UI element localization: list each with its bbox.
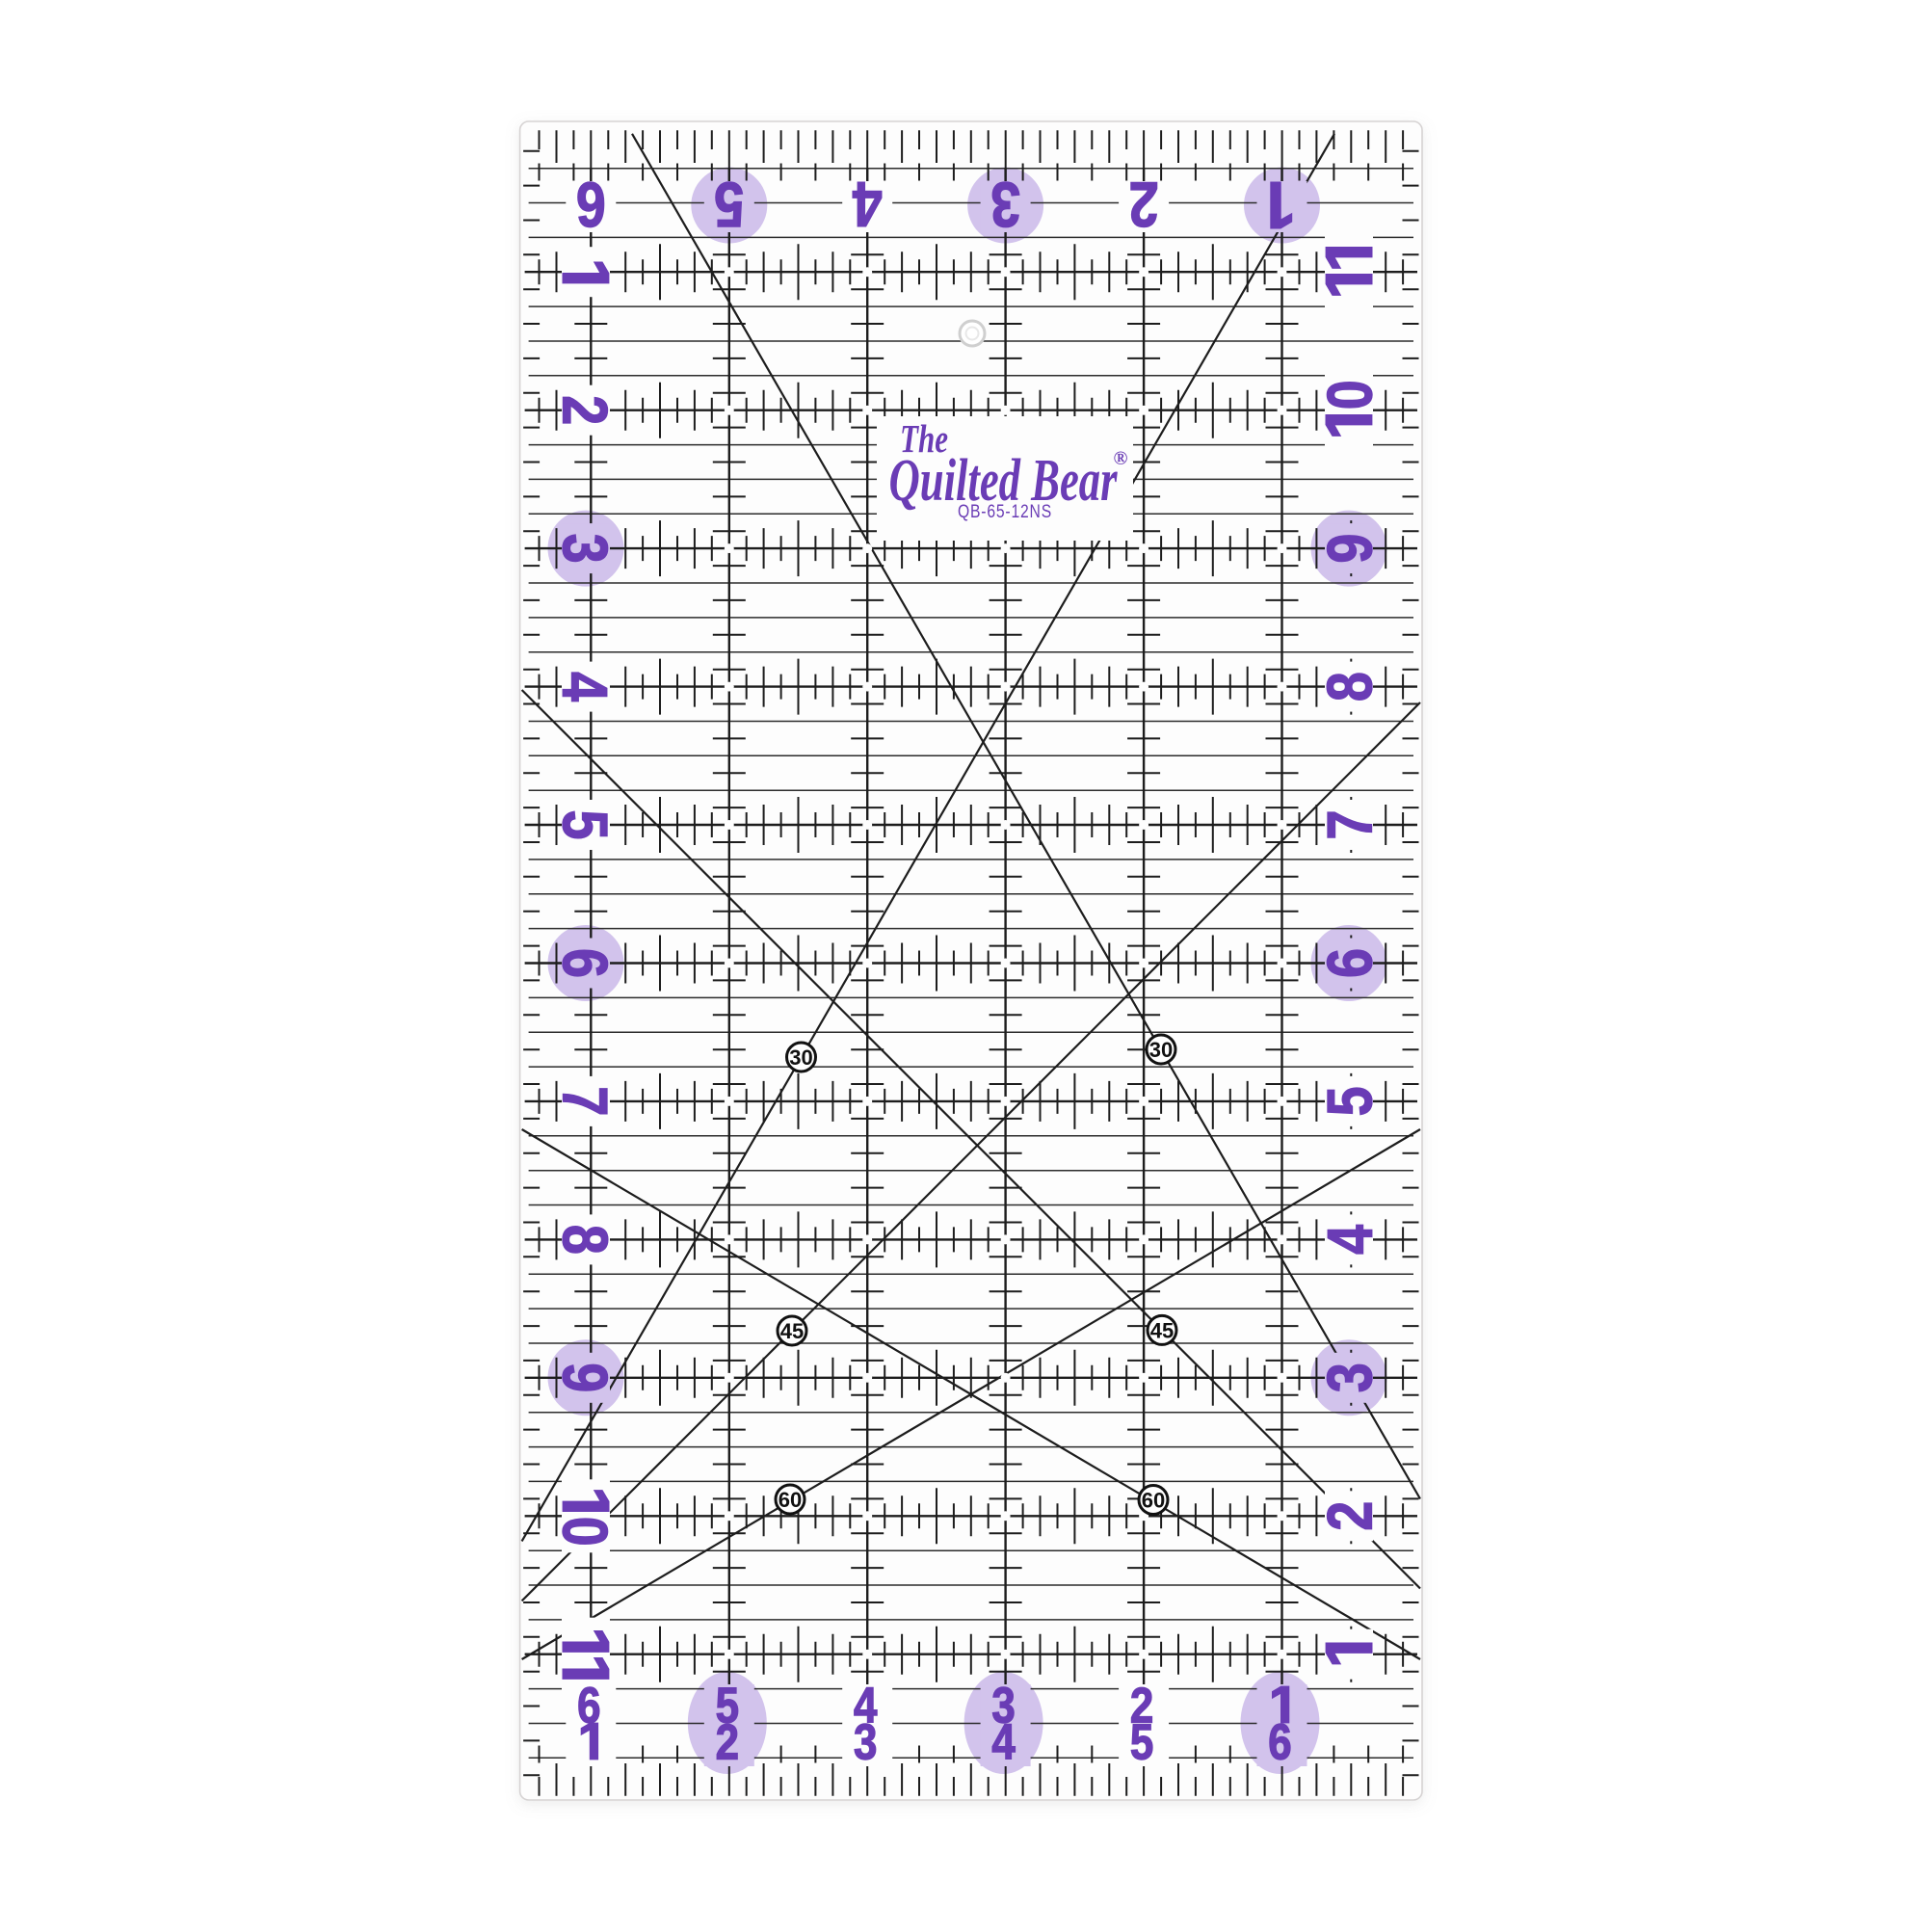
svg-text:5: 5 [1130,1715,1153,1771]
svg-text:5: 5 [550,810,621,840]
svg-text:0: 0 [550,1517,621,1547]
svg-text:7: 7 [1314,810,1386,840]
svg-text:3: 3 [550,534,621,564]
svg-text:45: 45 [1150,1318,1174,1342]
svg-text:2: 2 [550,395,621,425]
svg-text:4: 4 [852,170,882,241]
svg-text:3: 3 [990,170,1020,241]
svg-text:8: 8 [1313,672,1385,701]
svg-text:5: 5 [714,170,744,241]
svg-text:6: 6 [550,948,621,978]
svg-text:2: 2 [1313,1501,1385,1531]
svg-text:2: 2 [1129,170,1159,241]
svg-text:7: 7 [550,1086,621,1116]
svg-text:30: 30 [789,1045,812,1070]
svg-text:3: 3 [1314,1363,1386,1392]
svg-text:4: 4 [1313,1225,1385,1255]
svg-text:9: 9 [1314,534,1386,564]
svg-text:9: 9 [550,1363,621,1392]
svg-text:®: ® [1114,448,1128,469]
svg-text:4: 4 [550,672,621,701]
svg-text:0: 0 [1313,380,1385,410]
svg-text:6: 6 [1268,1715,1291,1771]
svg-text:4: 4 [991,1715,1015,1771]
svg-text:8: 8 [550,1225,621,1255]
svg-text:QB-65-12NS: QB-65-12NS [958,502,1052,522]
svg-text:6: 6 [1313,948,1385,978]
svg-text:60: 60 [779,1488,802,1512]
svg-text:3: 3 [854,1715,877,1771]
svg-text:2: 2 [716,1715,739,1771]
svg-text:30: 30 [1149,1038,1173,1062]
svg-text:60: 60 [1142,1489,1165,1513]
svg-text:5: 5 [1314,1086,1386,1116]
svg-text:45: 45 [780,1319,804,1343]
svg-text:6: 6 [576,170,606,241]
